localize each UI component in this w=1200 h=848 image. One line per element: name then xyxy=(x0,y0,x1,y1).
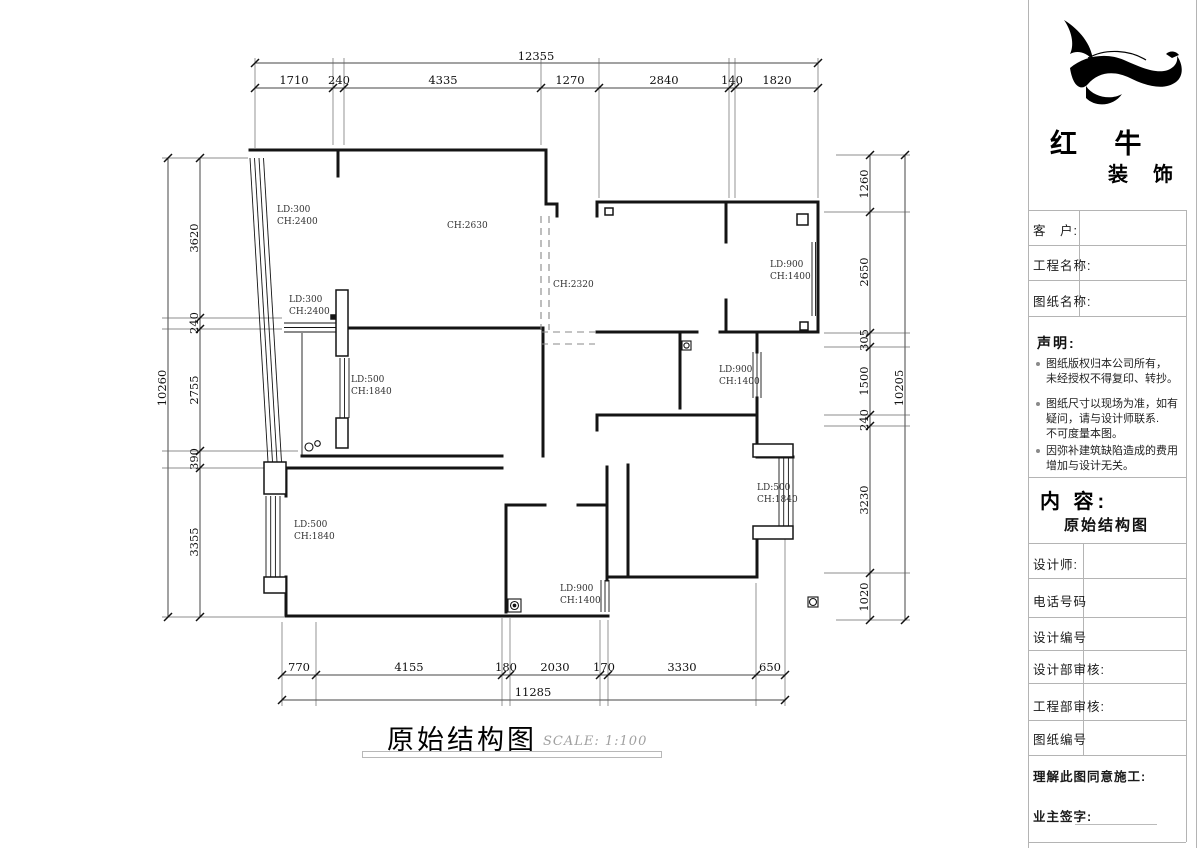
field-label-phone: 电话号码 xyxy=(1033,591,1087,610)
title-underline xyxy=(362,751,662,758)
statement-item: 图纸尺寸以现场为准，如有疑问，请与设计师联系.不可度量本图。 xyxy=(1046,397,1200,442)
dim-label: 170 xyxy=(593,660,615,674)
drawing-sheet: 12355 1710 240 4335 1270 2840 140 1820 7… xyxy=(0,0,1200,848)
dim-label: 180 xyxy=(495,660,517,674)
dim-label: 1270 xyxy=(555,73,584,87)
agree-label: 理解此图同意施工: xyxy=(1033,766,1146,785)
dim-label: 390 xyxy=(187,448,201,470)
row-line xyxy=(1028,720,1186,721)
field-label-design-no: 设计编号 xyxy=(1033,627,1087,646)
dim-label: 140 xyxy=(721,73,743,87)
field-label-design-audit: 设计部审核: xyxy=(1033,659,1105,678)
dim-label: 240 xyxy=(187,312,201,334)
field-label-drawing-no: 图纸编号 xyxy=(1033,729,1087,748)
dim-label: 1020 xyxy=(857,582,871,611)
frame-line xyxy=(1186,210,1187,842)
room-annotation: LD:900CH:1400 xyxy=(719,364,760,388)
column-divider xyxy=(1083,543,1084,755)
row-line xyxy=(1028,650,1186,651)
brand-subname: 装 饰 xyxy=(1108,158,1182,187)
dim-label: 1260 xyxy=(857,169,871,198)
row-line xyxy=(1028,280,1186,281)
field-label-drawing-name: 图纸名称: xyxy=(1033,291,1091,310)
statement-heading: 声明: xyxy=(1037,333,1076,353)
wall-pillars xyxy=(264,208,808,593)
dim-label: 240 xyxy=(857,409,871,431)
room-annotation: LD:300CH:2400 xyxy=(277,204,318,228)
row-line xyxy=(1028,578,1186,579)
content-value: 原始结构图 xyxy=(1064,514,1149,535)
title-block: 红 牛 装 饰 客 户: 工程名称: 图纸名称: 声明: 图纸版权归本公司所有，… xyxy=(1022,0,1200,848)
dim-label: 650 xyxy=(759,660,781,674)
bullet-dot-icon xyxy=(1036,449,1040,453)
dim-label: 10260 xyxy=(155,370,169,407)
bull-logo-icon xyxy=(1042,18,1182,128)
dim-label: 3330 xyxy=(667,660,696,674)
brand-name: 红 牛 xyxy=(1050,122,1155,161)
dim-label: 3230 xyxy=(857,485,871,514)
drawing-scale: SCALE: 1:100 xyxy=(543,734,647,749)
dim-label: 305 xyxy=(857,329,871,351)
room-annotation: LD:900CH:1400 xyxy=(560,583,601,607)
dim-label: 3355 xyxy=(187,527,201,556)
floorplan-area: 12355 1710 240 4335 1270 2840 140 1820 7… xyxy=(0,0,1022,848)
statement-item: 因弥补建筑缺陷造成的费用增加与设计无关。 xyxy=(1046,444,1200,474)
room-annotation: LD:900CH:1400 xyxy=(770,259,811,283)
row-line xyxy=(1028,245,1186,246)
dim-label: 2030 xyxy=(540,660,569,674)
dim-label: 4155 xyxy=(394,660,423,674)
row-line xyxy=(1028,755,1186,756)
dimension-ticks xyxy=(164,59,909,704)
field-label-project-name: 工程名称: xyxy=(1033,255,1091,274)
row-line xyxy=(1028,477,1186,478)
dim-label: 4335 xyxy=(428,73,457,87)
dim-label: 1820 xyxy=(762,73,791,87)
row-line xyxy=(1028,316,1186,317)
row-line xyxy=(1028,842,1186,843)
room-annotation: LD:500CH:1840 xyxy=(757,482,798,506)
extension-lines xyxy=(162,58,910,706)
owner-sign-line xyxy=(1075,808,1157,825)
bullet-dot-icon xyxy=(1036,362,1040,366)
room-annotation: CH:2320 xyxy=(553,279,594,291)
dim-label: 770 xyxy=(288,660,310,674)
field-label-customer: 客 户: xyxy=(1033,220,1078,239)
dim-label: 2755 xyxy=(187,375,201,404)
dim-label: 1710 xyxy=(279,73,308,87)
room-annotation: CH:2630 xyxy=(447,220,488,232)
room-annotation: LD:300CH:2400 xyxy=(289,294,330,318)
dim-label: 11285 xyxy=(515,685,552,699)
row-line xyxy=(1028,210,1186,211)
statement-item: 图纸版权归本公司所有，未经授权不得复印、转抄。 xyxy=(1046,357,1200,387)
dim-label: 2650 xyxy=(857,257,871,286)
dim-label: 2840 xyxy=(649,73,678,87)
dim-label: 240 xyxy=(328,73,350,87)
dim-label: 1500 xyxy=(857,366,871,395)
field-label-designer: 设计师: xyxy=(1033,554,1078,573)
dimension-lines xyxy=(168,63,905,700)
row-line xyxy=(1028,617,1186,618)
row-line xyxy=(1028,683,1186,684)
content-heading: 内 容: xyxy=(1040,485,1108,514)
dim-label: 3620 xyxy=(187,223,201,252)
field-label-engineering-audit: 工程部审核: xyxy=(1033,696,1105,715)
row-line xyxy=(1028,543,1186,544)
bullet-dot-icon xyxy=(1036,402,1040,406)
dim-label: 12355 xyxy=(518,49,555,63)
room-annotation: LD:500CH:1840 xyxy=(294,519,335,543)
dim-label: 10205 xyxy=(892,370,906,407)
room-annotation: LD:500CH:1840 xyxy=(351,374,392,398)
